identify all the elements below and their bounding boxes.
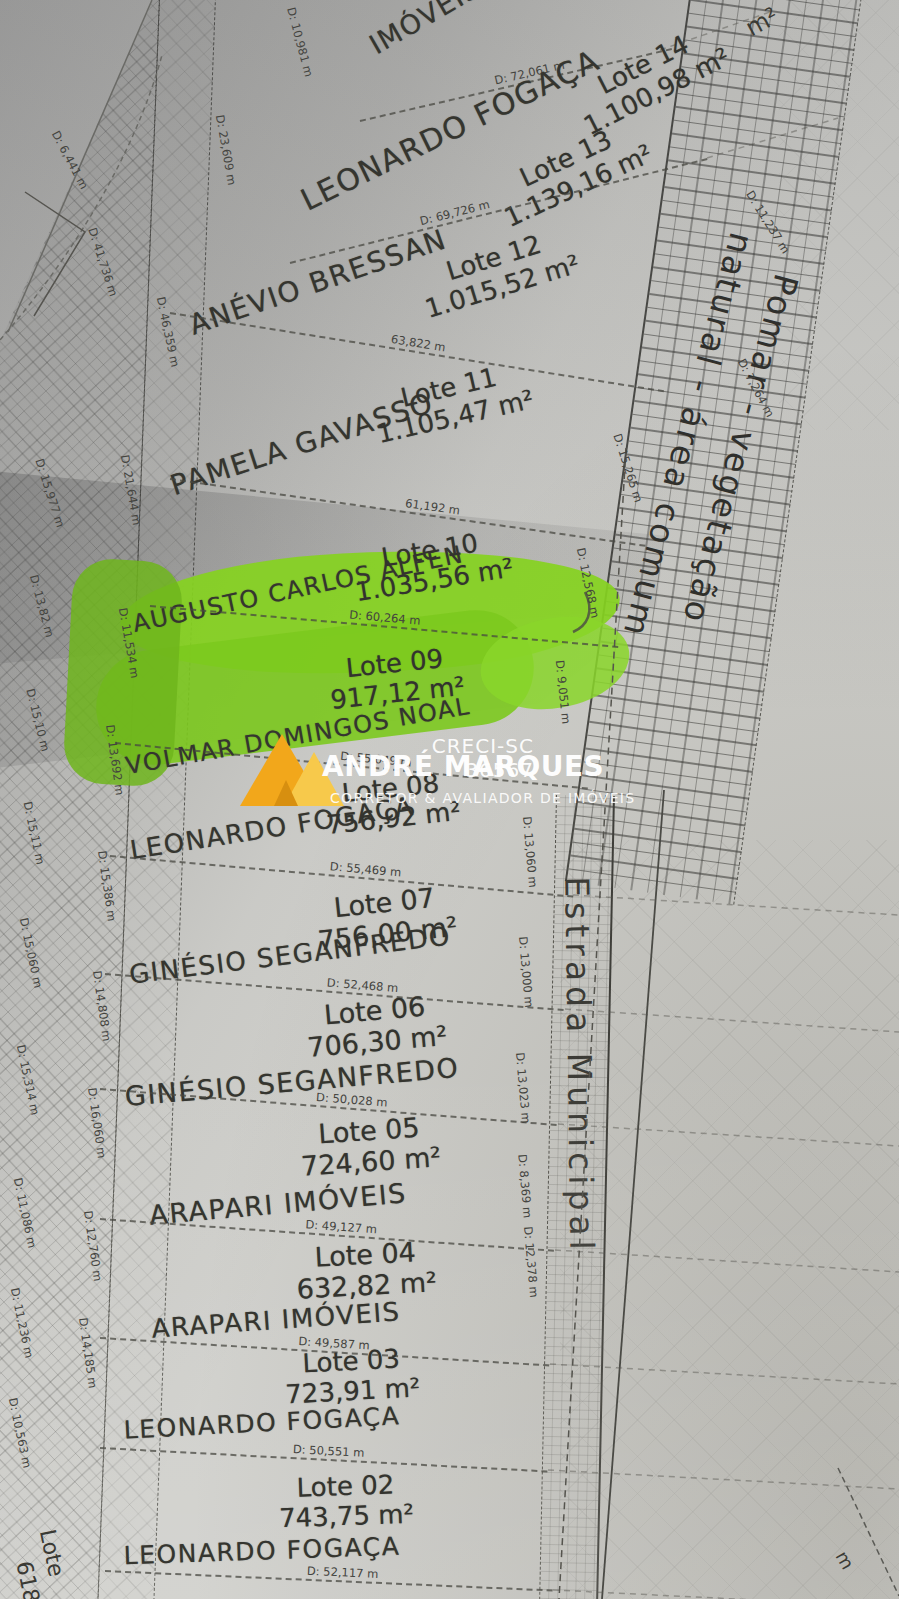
boundary-dimension: D: 50,551 m bbox=[293, 1442, 365, 1460]
lot-area: 743,75 m² bbox=[279, 1499, 415, 1534]
lot-boundary-line: 61,192 m bbox=[170, 478, 646, 547]
lot-number: Lote 02 bbox=[277, 1469, 413, 1504]
boundary-dimension: D: 52,468 m bbox=[326, 975, 398, 995]
pomar-edge-dimension: D: 7,264 m bbox=[735, 356, 777, 419]
lot-area: 723,91 m² bbox=[285, 1372, 421, 1409]
estrada-edge-dimension: D: 13,060 m bbox=[520, 816, 540, 888]
boundary-dimension: D: 69,726 m bbox=[418, 197, 491, 228]
pomar-edge-dimension: D: 15,265 m bbox=[610, 432, 645, 504]
boundary-dimension: D: 50,028 m bbox=[316, 1090, 388, 1110]
lot-label-block: Lote 03723,91 m² bbox=[283, 1343, 421, 1410]
left-edge-dimension: D: 15,314 m bbox=[14, 1044, 43, 1117]
left-edge-dimension: D: 10,563 m bbox=[6, 1397, 35, 1470]
boundary-dimension: D: 49,127 m bbox=[305, 1217, 377, 1236]
lot-boundary-line: D: 50,551 m bbox=[100, 1447, 547, 1472]
logo-notch bbox=[274, 780, 298, 806]
left-edge-dimension: D: 11,236 m bbox=[8, 1287, 37, 1360]
left-edge-dimension: D: 16,060 m bbox=[85, 1087, 109, 1160]
left-edge-dimension: D: 21,644 m bbox=[118, 454, 144, 527]
boundary-dimension: 61,192 m bbox=[404, 496, 461, 518]
lot-label-block: Lote 111.105,47 m² bbox=[367, 355, 536, 449]
lot-boundary-line: D: 52,117 m bbox=[105, 1570, 553, 1592]
lot-label-block: Lote 04632,82 m² bbox=[294, 1235, 437, 1304]
left-edge-dimension: D: 14,185 m bbox=[76, 1317, 100, 1390]
left-edge-dimension: D: 23,609 m bbox=[213, 114, 239, 187]
left-edge-dimension: D: 15,977 m bbox=[32, 457, 67, 529]
lot-owner: ARAPARI IMÓVEIS bbox=[151, 1296, 402, 1343]
lot-label-block: Lote 02743,75 m² bbox=[277, 1469, 414, 1534]
lot-owner: LEONARDO FOGAÇA bbox=[123, 1401, 401, 1444]
pomar-edge-dimension: D: 11,237 m bbox=[743, 188, 793, 256]
boundary-dimension: D: 60,264 m bbox=[349, 607, 421, 627]
boundary-dimension: D: 55,469 m bbox=[329, 859, 401, 879]
left-edge-dimension: D: 15,10 m bbox=[23, 687, 52, 753]
lot-owner: LEONARDO FOGAÇA bbox=[123, 1532, 400, 1571]
estrada-edge-dimension: D: 13,000 m bbox=[516, 936, 536, 1008]
lot-owner: ANÉVIO BRESSAN bbox=[185, 223, 451, 342]
left-edge-dimension: D: 12,760 m bbox=[81, 1210, 105, 1283]
left-edge-dimension: D: 11,086 m bbox=[11, 1177, 40, 1250]
pomar-edge-dimension: D: 9,051 m bbox=[553, 659, 574, 724]
watermark-name: ANDRÉ MARQUES bbox=[322, 750, 604, 783]
lot-label-block: Lote 131.139,16 m² bbox=[487, 111, 657, 233]
pomar-edge-dimension: D: 12,568 m bbox=[574, 547, 603, 620]
boundary-dimension: D: 52,117 m bbox=[307, 1564, 379, 1581]
left-edge-dimension: D: 14,808 m bbox=[90, 970, 114, 1043]
lot-boundary-line: D: 60,264 m bbox=[150, 605, 618, 648]
lot-label-block: Lote 05724,60 m² bbox=[298, 1110, 442, 1182]
lot-area: 632,82 m² bbox=[296, 1266, 438, 1304]
estrada-edge-dimension: D: 8,369 m bbox=[515, 1153, 535, 1218]
left-edge-dimension: D: 13,692 m bbox=[103, 724, 127, 797]
watermark-tagline: CORRETOR & AVALIADOR DE IMÓVEIS bbox=[330, 790, 635, 806]
left-edge-dimension: D: 6,441 m bbox=[49, 128, 91, 191]
estrada-edge-dimension: D: 12,378 m bbox=[521, 1226, 541, 1298]
left-edge-dimension: D: 15,060 m bbox=[17, 917, 46, 990]
estrada-edge-dimension: D: 13,023 m bbox=[513, 1052, 533, 1124]
left-edge-dimension: D: 10,981 m bbox=[284, 6, 316, 79]
left-edge-dimension: D: 13,82 m bbox=[27, 573, 57, 639]
left-edge-dimension: D: 15,386 m bbox=[95, 850, 119, 923]
lot-label-block: Lote 101.035,56 m² bbox=[348, 523, 515, 607]
boundary-dimension: 63,822 m bbox=[390, 332, 447, 354]
plat-map-photo: Pomar - vegetação natural - área comum E… bbox=[0, 0, 899, 1599]
left-edge-dimension: D: 15,11 m bbox=[20, 800, 47, 866]
left-edge-dimension: D: 41,736 m bbox=[85, 226, 120, 298]
lot-label-block: Lote 06706,30 m² bbox=[303, 989, 448, 1063]
left-edge-dimension: D: 46,359 m bbox=[154, 296, 183, 369]
lot-owner: IMÓVEIS bbox=[364, 0, 486, 60]
